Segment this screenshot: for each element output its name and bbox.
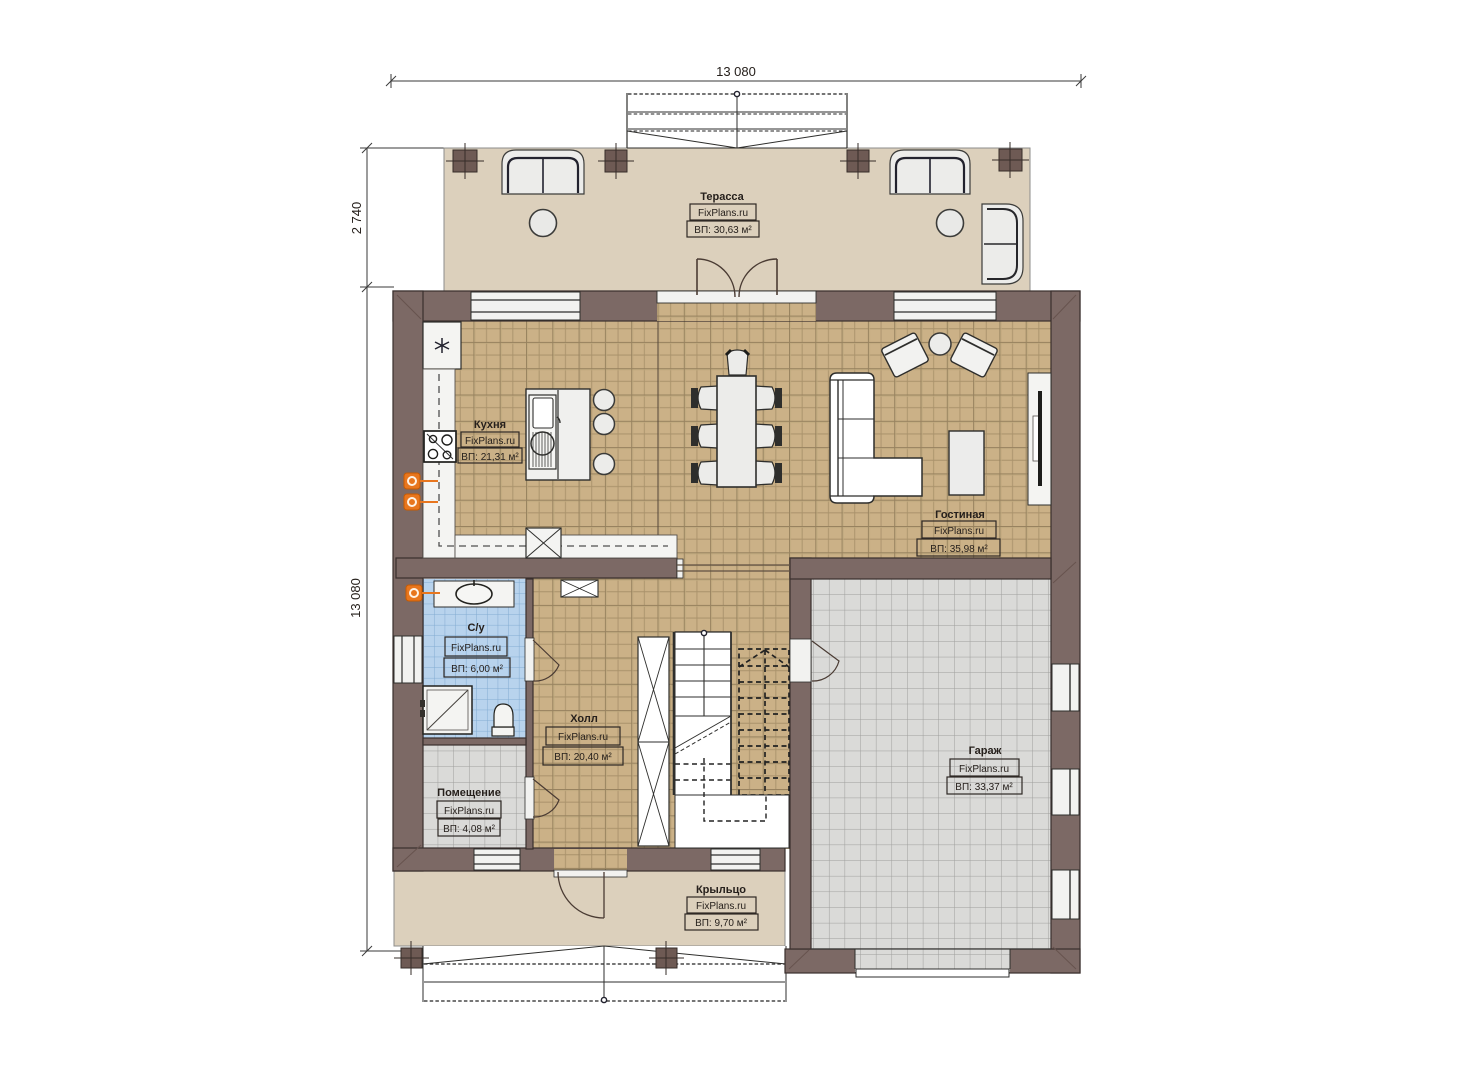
svg-text:ВП: 6,00 м²: ВП: 6,00 м²	[451, 664, 504, 675]
svg-text:FixPlans.ru: FixPlans.ru	[465, 436, 515, 447]
svg-text:С/у: С/у	[467, 622, 485, 634]
svg-text:FixPlans.ru: FixPlans.ru	[959, 764, 1009, 775]
svg-text:2 740: 2 740	[349, 202, 364, 235]
svg-text:13 080: 13 080	[716, 64, 756, 79]
svg-text:FixPlans.ru: FixPlans.ru	[934, 526, 984, 537]
svg-text:FixPlans.ru: FixPlans.ru	[698, 208, 748, 219]
svg-text:ВП: 20,40 м²: ВП: 20,40 м²	[554, 752, 612, 763]
svg-text:ВП: 9,70 м²: ВП: 9,70 м²	[695, 918, 748, 929]
svg-text:ВП: 35,98 м²: ВП: 35,98 м²	[930, 544, 988, 555]
svg-text:FixPlans.ru: FixPlans.ru	[558, 732, 608, 743]
svg-text:Терасса: Терасса	[700, 191, 744, 203]
svg-text:Гараж: Гараж	[969, 745, 1002, 757]
svg-text:Кухня: Кухня	[474, 419, 506, 431]
svg-text:FixPlans.ru: FixPlans.ru	[451, 643, 501, 654]
svg-text:ВП: 4,08 м²: ВП: 4,08 м²	[443, 824, 496, 835]
svg-text:Холл: Холл	[570, 713, 598, 725]
svg-text:Помещение: Помещение	[437, 787, 501, 799]
svg-text:ВП: 33,37 м²: ВП: 33,37 м²	[955, 782, 1013, 793]
svg-text:13 080: 13 080	[348, 578, 363, 618]
svg-text:FixPlans.ru: FixPlans.ru	[696, 901, 746, 912]
svg-text:ВП: 30,63 м²: ВП: 30,63 м²	[694, 225, 752, 236]
svg-text:FixPlans.ru: FixPlans.ru	[444, 806, 494, 817]
svg-text:Гостиная: Гостиная	[935, 509, 985, 521]
svg-text:Крыльцо: Крыльцо	[696, 884, 746, 896]
svg-text:ВП: 21,31 м²: ВП: 21,31 м²	[461, 452, 519, 463]
